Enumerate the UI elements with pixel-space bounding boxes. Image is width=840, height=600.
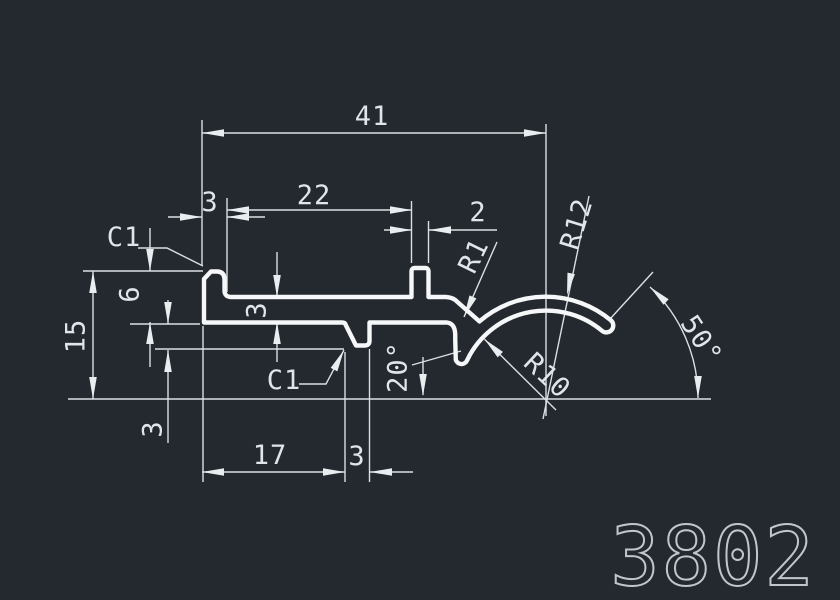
dim-22-label: 22 [297,180,332,211]
dim-3-lip-label: 3 [138,420,169,437]
arrowhead-icon [227,206,249,214]
arrowhead-icon [390,206,412,214]
arrowhead-icon [370,468,392,476]
angle-20-label: 20° [383,341,414,393]
radius-r10-label: R10 [517,347,576,405]
dim-3-top-label: 3 [201,187,218,218]
arrowhead-icon [273,322,281,344]
arrowhead-icon [146,249,154,271]
arrowheads [89,129,702,476]
dim-6-label: 6 [115,285,146,302]
angle-50-ray [610,272,653,319]
arrowhead-icon [146,322,154,344]
arrowhead-icon [202,129,224,137]
arrowhead-icon [273,275,281,297]
radius-r12-label: R12 [555,195,600,254]
arrowhead-icon [429,226,451,234]
chamfer-notch-label: C1 [267,365,302,396]
cad-viewport[interactable]: 41 22 3 2 C1 17 3 C1 15 6 3 3 20° R1 R12… [0,0,840,600]
part-number: 3802 [610,510,815,600]
arrowhead-icon [524,129,546,137]
technical-drawing: 41 22 3 2 C1 17 3 C1 15 6 3 3 20° R1 R12… [0,0,840,600]
arrowhead-icon [390,226,412,234]
angle-50-label: 50° [674,310,728,370]
dimension-labels: 41 22 3 2 C1 17 3 C1 15 6 3 3 20° R1 R12… [61,101,729,472]
dim-15-label: 15 [61,319,92,354]
arrowhead-icon [694,376,702,398]
dim-2-label: 2 [469,197,486,228]
arrowhead-icon [202,468,224,476]
arrowhead-icon [164,350,172,372]
arrowhead-icon [180,213,202,221]
arrowhead-icon [164,302,172,324]
arrowhead-icon [89,377,97,399]
dim-41-label: 41 [355,101,390,132]
radius-r1-label: R1 [453,234,496,279]
arrowhead-icon [89,271,97,293]
dim-17-label: 17 [253,440,288,471]
chamfer-top-label: C1 [107,222,142,253]
arrowhead-icon [419,374,427,396]
arrowhead-icon [227,213,249,221]
arrowhead-icon [323,468,345,476]
dim-3-rib-label: 3 [348,441,365,472]
arrowhead-icon [482,337,503,358]
dim-3-wall-label: 3 [242,301,273,318]
